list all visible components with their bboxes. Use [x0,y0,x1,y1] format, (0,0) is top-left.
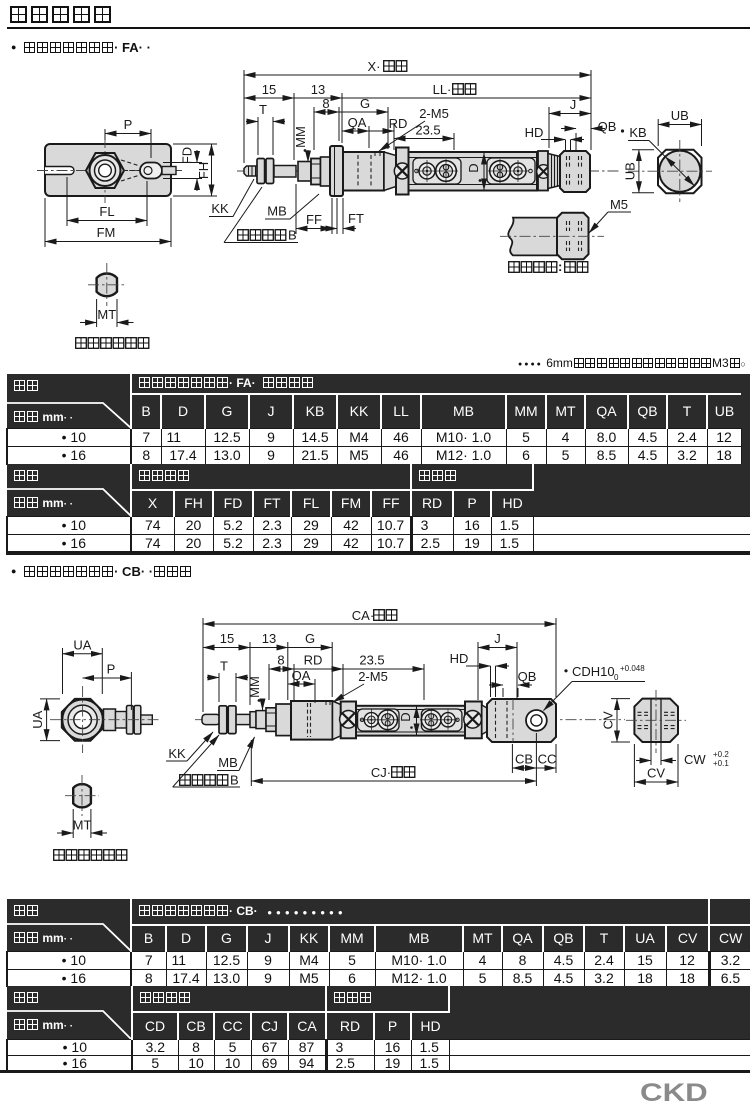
svg-text:UA: UA [73,638,91,653]
svg-text:MB: MB [267,204,287,219]
svg-text:FT: FT [348,211,364,226]
svg-text:QB: QB [518,669,537,684]
svg-text:CDH10: CDH10 [572,664,615,679]
svg-text:T: T [259,102,267,117]
svg-text:B: B [230,773,239,788]
svg-text:CC: CC [538,752,557,767]
svg-text:LL·: LL· [433,82,452,97]
svg-text:HD: HD [525,125,544,140]
svg-text:CV: CV [601,711,616,729]
svg-text:J: J [570,97,577,112]
svg-text:KK: KK [168,746,186,761]
svg-text:8: 8 [277,653,284,668]
svg-text:2-M5: 2-M5 [419,106,449,121]
svg-text:J: J [494,631,501,646]
svg-text:FL: FL [99,204,114,219]
svg-text:M5: M5 [610,197,628,212]
svg-text:MB: MB [218,755,238,770]
svg-text:CB: CB [515,752,533,767]
svg-text:FD: FD [180,147,195,164]
svg-text:CA·: CA· [352,608,374,623]
svg-text:MM: MM [247,676,262,698]
svg-text:CW: CW [684,752,706,767]
svg-text:D: D [466,163,481,172]
svg-text:RD: RD [304,653,323,668]
svg-text:MM: MM [293,126,308,148]
svg-text:CJ·: CJ· [371,765,391,780]
svg-text:UA: UA [30,710,45,728]
svg-text:T: T [220,659,228,674]
svg-text:15: 15 [262,82,276,97]
svg-text:HD: HD [450,651,469,666]
svg-text:13: 13 [311,82,325,97]
svg-text:B: B [288,228,297,243]
svg-text:D: D [398,712,413,721]
svg-text:QA: QA [348,115,367,130]
svg-text:FH: FH [196,162,211,179]
svg-text:P: P [124,117,133,132]
svg-text:MT: MT [97,307,116,322]
svg-text:8: 8 [322,96,329,111]
svg-text:QB: QB [598,119,617,134]
svg-text:X·: X· [368,59,381,74]
svg-text:+0.048: +0.048 [620,664,645,673]
svg-text:0: 0 [614,673,619,682]
svg-text:CV: CV [647,766,665,781]
svg-text:+0.2: +0.2 [713,750,729,759]
svg-text:13: 13 [262,631,276,646]
svg-text:FF: FF [306,212,322,227]
svg-text:23.5: 23.5 [359,653,384,668]
svg-text:KK: KK [211,201,229,216]
svg-text:UB: UB [623,162,638,180]
svg-text:RD: RD [389,116,408,131]
svg-text:2-M5: 2-M5 [358,669,388,684]
svg-text:15: 15 [220,631,234,646]
svg-text:G: G [360,96,370,111]
svg-text:UB: UB [671,108,689,123]
svg-text:MT: MT [73,818,92,833]
svg-text:G: G [305,631,315,646]
svg-text:P: P [107,662,116,677]
svg-text:KB: KB [629,125,646,140]
svg-text::: : [558,259,562,274]
svg-text:QA: QA [292,668,311,683]
svg-text:+0.1: +0.1 [713,759,729,768]
svg-text:FM: FM [97,225,116,240]
